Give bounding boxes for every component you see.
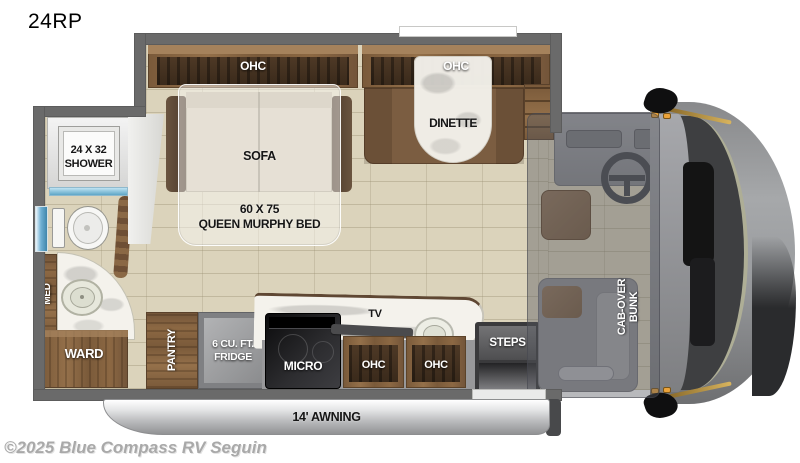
- wall-bath-top: [33, 106, 146, 117]
- ward-text: WARD: [65, 346, 104, 361]
- ohc-kitchen-right-label: OHC: [406, 357, 466, 372]
- bed-text: QUEEN MURPHY BED: [199, 217, 321, 232]
- awning-text: 14' AWNING: [292, 410, 360, 424]
- watermark: ©2025 Blue Compass RV Seguin: [4, 438, 267, 458]
- cooktop-icon: [269, 317, 335, 329]
- wall-right: [550, 33, 562, 133]
- model-title: 24RP: [28, 10, 83, 34]
- ohc-top-right-label: OHC: [362, 58, 550, 73]
- front-fascia-shadow: [752, 236, 796, 396]
- bunk-line1-text: CAB-OVER: [616, 279, 628, 335]
- dinette-bench-left-seat: [364, 88, 392, 164]
- fridge-text: FRIDGE: [214, 351, 252, 364]
- bed-size-text: 60 X 75: [240, 202, 279, 217]
- cab-over-bunk-label: CAB-OVER BUNK: [613, 242, 643, 372]
- ohc-top-right-text: OHC: [443, 59, 469, 73]
- shower-text: SHOWER: [65, 157, 113, 171]
- ward-cabinet-top-edge: [40, 330, 128, 337]
- dinette-bench-right-seat: [496, 88, 524, 164]
- windshield-glass-upper: [683, 162, 714, 266]
- ohc-top-right-edge: [362, 45, 550, 54]
- micro-text: MICRO: [284, 359, 323, 373]
- shower-label: 24 X 32 SHOWER: [47, 141, 130, 173]
- ohc-top-left-edge: [148, 45, 358, 54]
- tv-text: TV: [368, 308, 381, 320]
- marker-light-top-2-icon: [663, 113, 671, 119]
- shower-size-text: 24 X 32: [71, 143, 107, 157]
- ohc-kitchen-left-label: OHC: [343, 357, 404, 372]
- tv-label: TV: [358, 307, 392, 320]
- dinette-text: DINETTE: [429, 116, 477, 130]
- shower-glass: [49, 187, 128, 196]
- ohc-kitchen-right-text: OHC: [424, 359, 448, 371]
- pantry-label: PANTRY: [162, 318, 182, 382]
- sofa-text: SOFA: [243, 149, 276, 163]
- wall-top-left-step: [134, 33, 146, 117]
- sofa-label: SOFA: [178, 148, 341, 164]
- bunk-line2-text: BUNK: [628, 292, 640, 323]
- steps-text: STEPS: [489, 337, 525, 349]
- dinette-label: DINETTE: [414, 115, 492, 130]
- ohc-kitchen-left-text: OHC: [362, 359, 386, 371]
- bath-sink-drain-icon: [80, 295, 84, 299]
- left-window-frame: [35, 206, 48, 252]
- wall-left: [33, 106, 45, 401]
- toilet-drain-icon: [84, 225, 90, 231]
- fridge-size-text: 6 CU. FT.: [212, 338, 254, 351]
- floorplan-image: 24 X 32 SHOWER MED WARD OHC SOFA 60 X 75…: [0, 0, 800, 463]
- top-window: [399, 26, 517, 37]
- murphy-bed-label: 60 X 75 QUEEN MURPHY BED: [178, 201, 341, 233]
- pantry-text: PANTRY: [166, 329, 178, 371]
- windshield-glass-lower: [690, 258, 715, 346]
- ohc-top-left-label: OHC: [148, 58, 358, 73]
- awning: 14' AWNING: [103, 399, 550, 435]
- toilet-tank-icon: [52, 208, 65, 248]
- ohc-top-left-text: OHC: [240, 59, 266, 73]
- ward-label: WARD: [40, 344, 128, 362]
- micro-label: MICRO: [265, 358, 341, 374]
